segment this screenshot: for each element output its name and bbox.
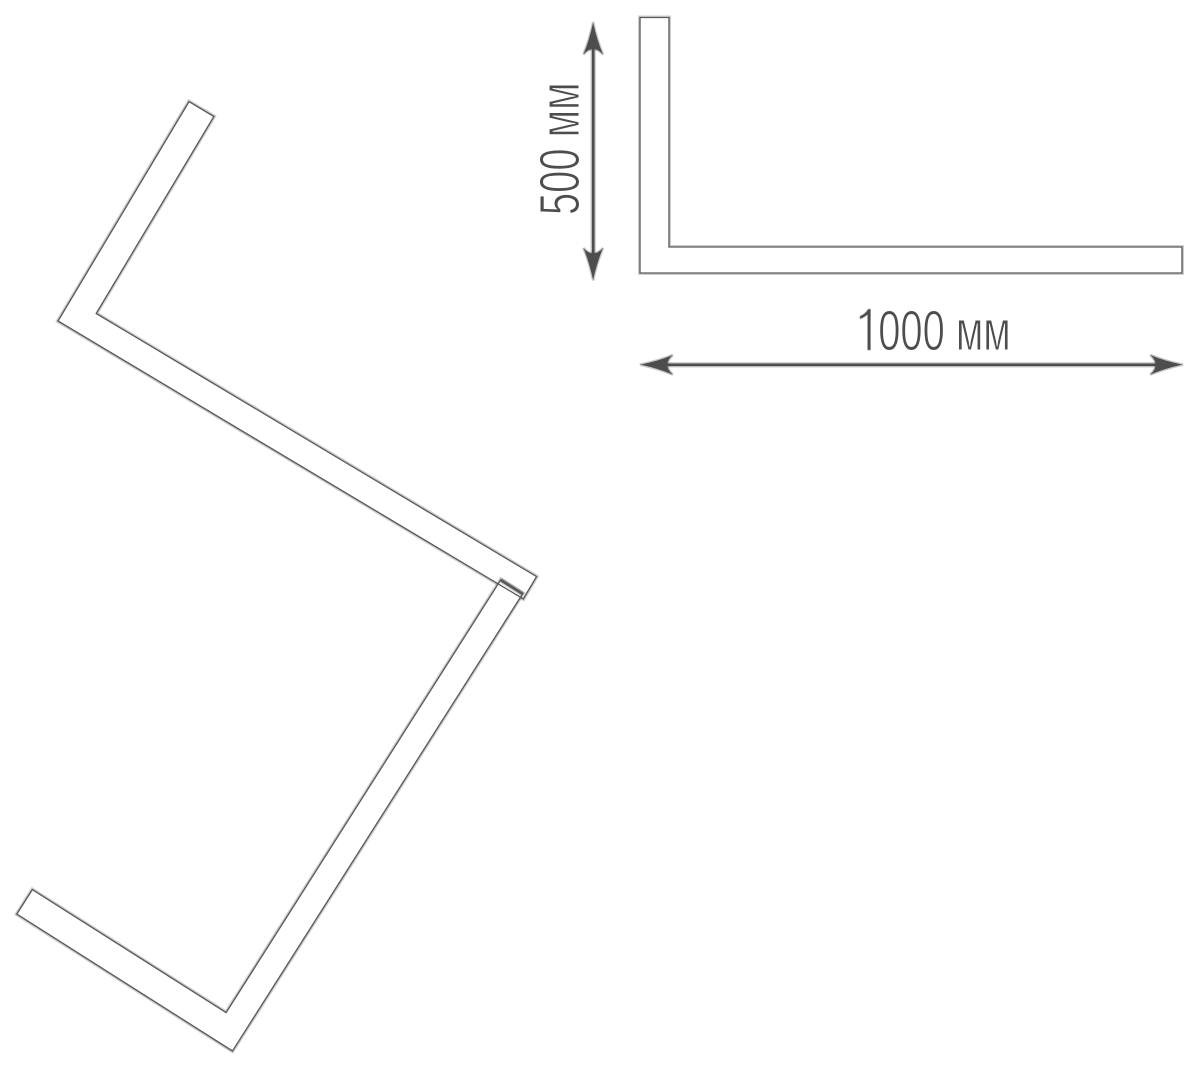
svg-text:000 мм: 000 мм [878,299,1010,363]
svg-text:500 мм: 500 мм [528,83,592,215]
